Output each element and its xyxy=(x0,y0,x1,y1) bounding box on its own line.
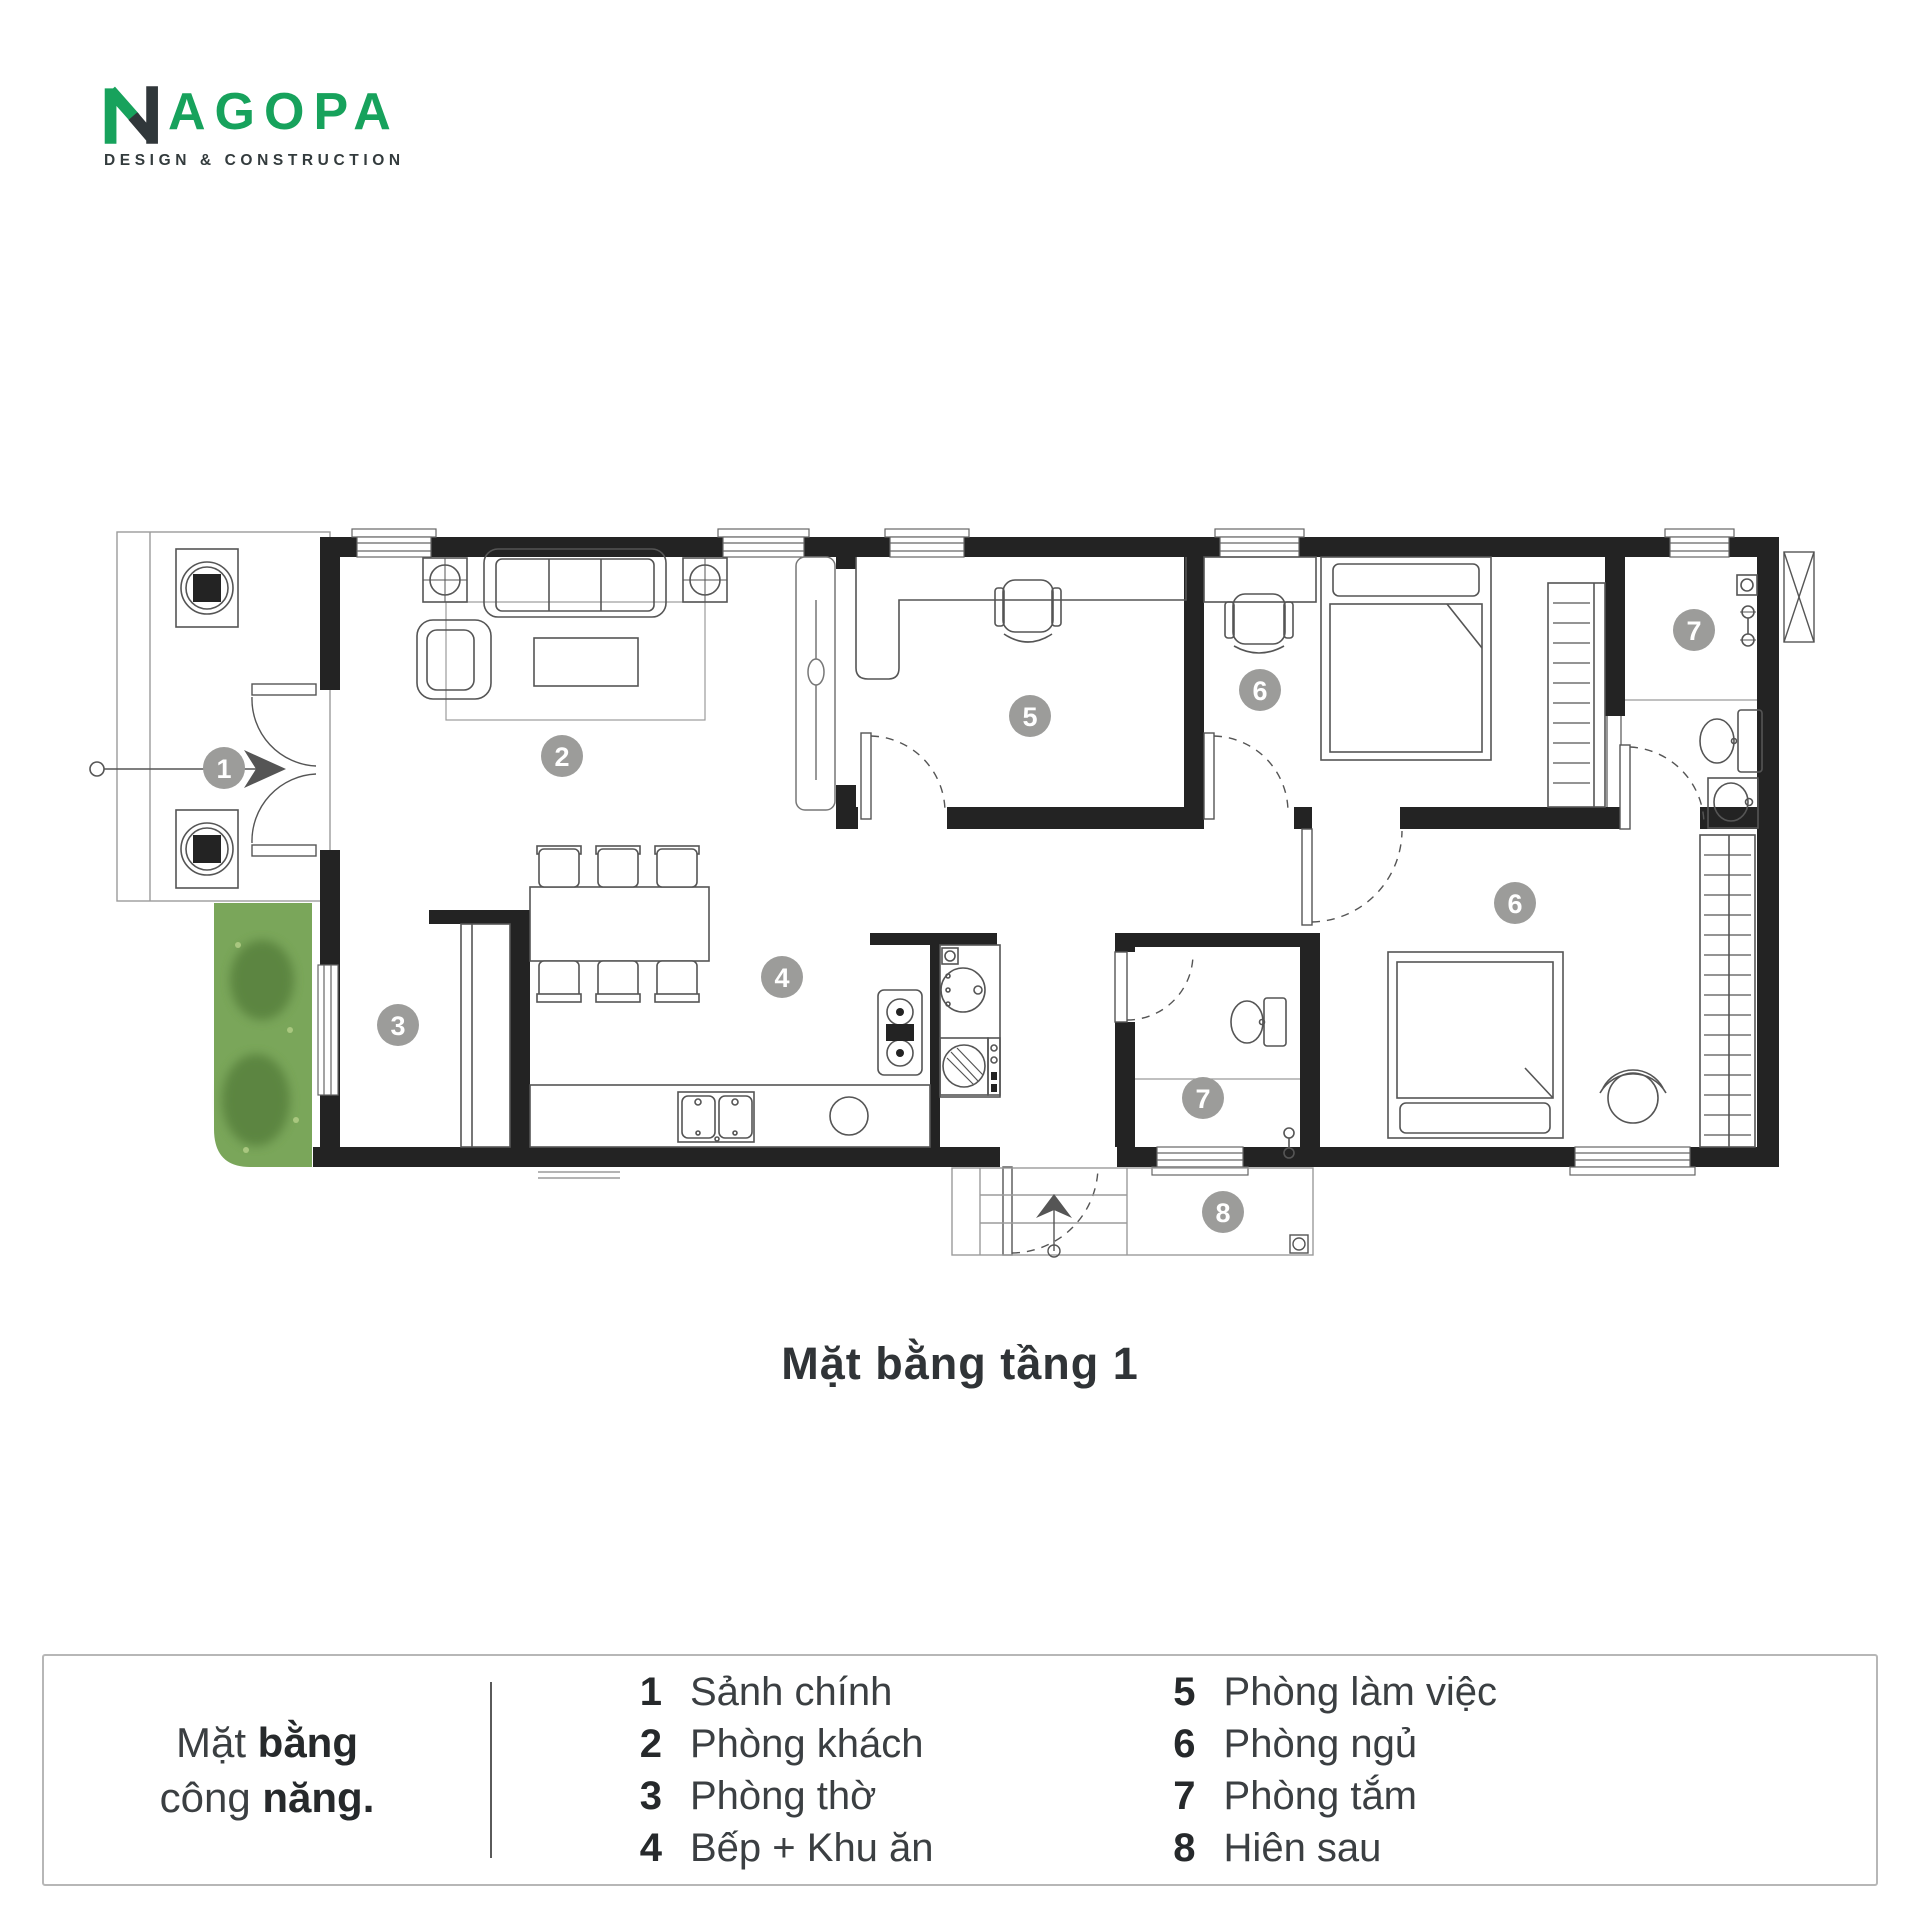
legend-item-number: 3 xyxy=(610,1774,662,1819)
room-badge: 8 xyxy=(1202,1191,1244,1233)
sliding-door xyxy=(796,557,835,810)
legend-item-label: Phòng làm việc xyxy=(1224,1670,1497,1715)
sofa xyxy=(484,549,666,617)
room-badge: 4 xyxy=(761,956,803,998)
legend-item-label: Phòng thờ xyxy=(690,1774,876,1819)
wardrobe-top xyxy=(1548,583,1605,807)
legend-item: 3Phòng thờ xyxy=(610,1774,934,1819)
svg-text:6: 6 xyxy=(1507,889,1522,919)
shaft-hatch xyxy=(1784,552,1814,642)
legend-item: 4Bếp + Khu ăn xyxy=(610,1826,934,1871)
legend-item-label: Sảnh chính xyxy=(690,1670,892,1715)
svg-text:4: 4 xyxy=(774,963,789,993)
planter-top xyxy=(176,549,238,627)
side-table-left xyxy=(423,558,467,602)
bed-bottom xyxy=(1388,952,1563,1138)
legend-item: 7Phòng tắm xyxy=(1144,1774,1497,1819)
legend-item-label: Hiên sau xyxy=(1224,1826,1382,1871)
legend-heading-line1-bold: bằng xyxy=(258,1719,358,1766)
legend-box: Mặt bằng công năng. 1Sảnh chính2Phòng kh… xyxy=(42,1654,1878,1886)
legend-column-2: 5Phòng làm việc6Phòng ngủ7Phòng tắm8Hiên… xyxy=(1144,1663,1497,1878)
room-badge: 2 xyxy=(541,735,583,777)
legend-heading-line2-bold: năng. xyxy=(262,1774,374,1821)
room-badge: 7 xyxy=(1673,609,1715,651)
office-desk xyxy=(856,557,1186,679)
legend-item-label: Bếp + Khu ăn xyxy=(690,1826,934,1871)
round-chair xyxy=(1600,1070,1666,1123)
legend-item: 2Phòng khách xyxy=(610,1722,934,1767)
legend-heading: Mặt bằng công năng. xyxy=(44,1715,490,1825)
legend-item: 1Sảnh chính xyxy=(610,1670,934,1715)
side-table-right xyxy=(683,558,727,602)
legend-item: 8Hiên sau xyxy=(1144,1826,1497,1871)
svg-text:8: 8 xyxy=(1215,1198,1230,1228)
armchair xyxy=(417,620,491,699)
svg-text:3: 3 xyxy=(390,1011,405,1041)
floor-plan: 1234566778 xyxy=(0,0,1920,1920)
planter-bottom xyxy=(176,810,238,888)
shower-faucet-icon xyxy=(1740,606,1756,646)
room-badge: 5 xyxy=(1009,695,1051,737)
room-badge: 6 xyxy=(1494,882,1536,924)
legend-divider xyxy=(490,1682,492,1858)
legend-item-label: Phòng khách xyxy=(690,1722,924,1767)
room-badge: 3 xyxy=(377,1004,419,1046)
legend-item: 5Phòng làm việc xyxy=(1144,1670,1497,1715)
legend-item-number: 7 xyxy=(1144,1774,1196,1819)
stove xyxy=(878,990,922,1075)
toilet-top xyxy=(1700,710,1762,772)
bedroom-chair xyxy=(1225,594,1293,653)
svg-text:7: 7 xyxy=(1686,616,1701,646)
wardrobe-bottom xyxy=(1700,835,1755,1147)
entry-arrow-icon xyxy=(90,750,286,788)
legend-item-number: 1 xyxy=(610,1670,662,1715)
legend-item-label: Phòng tắm xyxy=(1224,1774,1417,1819)
drain-icon xyxy=(1290,1235,1308,1253)
kitchen-counter xyxy=(530,1085,930,1147)
grass-patch xyxy=(214,903,312,1167)
svg-text:2: 2 xyxy=(554,742,569,772)
bathroom-middle xyxy=(1135,998,1300,1158)
rug xyxy=(446,602,705,720)
coffee-table xyxy=(534,638,638,686)
legend-item-number: 6 xyxy=(1144,1722,1196,1767)
room-badge: 6 xyxy=(1239,669,1281,711)
toilet-middle xyxy=(1231,998,1286,1046)
svg-text:5: 5 xyxy=(1022,702,1037,732)
legend-item-number: 4 xyxy=(610,1826,662,1871)
legend-heading-line1-regular: Mặt xyxy=(176,1719,246,1766)
room-badge: 1 xyxy=(203,747,245,789)
plan-title: Mặt bằng tầng 1 xyxy=(0,1338,1920,1390)
altar-cabinet xyxy=(461,924,510,1147)
bed-top xyxy=(1321,557,1491,760)
svg-text:6: 6 xyxy=(1252,676,1267,706)
bedroom-desk xyxy=(1204,557,1316,602)
dining-set xyxy=(530,846,709,1002)
legend-item-number: 5 xyxy=(1144,1670,1196,1715)
legend-item-number: 8 xyxy=(1144,1826,1196,1871)
office-chair xyxy=(995,580,1061,642)
furniture xyxy=(417,549,1762,1158)
legend-heading-line2-regular: công xyxy=(160,1774,251,1821)
svg-text:1: 1 xyxy=(216,754,231,784)
legend-item-label: Phòng ngủ xyxy=(1224,1722,1418,1767)
svg-text:7: 7 xyxy=(1195,1084,1210,1114)
room-badge: 7 xyxy=(1182,1077,1224,1119)
legend-item: 6Phòng ngủ xyxy=(1144,1722,1497,1767)
legend-item-number: 2 xyxy=(610,1722,662,1767)
kitchen-utility-column xyxy=(940,945,1000,1097)
legend-column-1: 1Sảnh chính2Phòng khách3Phòng thờ4Bếp + … xyxy=(610,1663,934,1878)
